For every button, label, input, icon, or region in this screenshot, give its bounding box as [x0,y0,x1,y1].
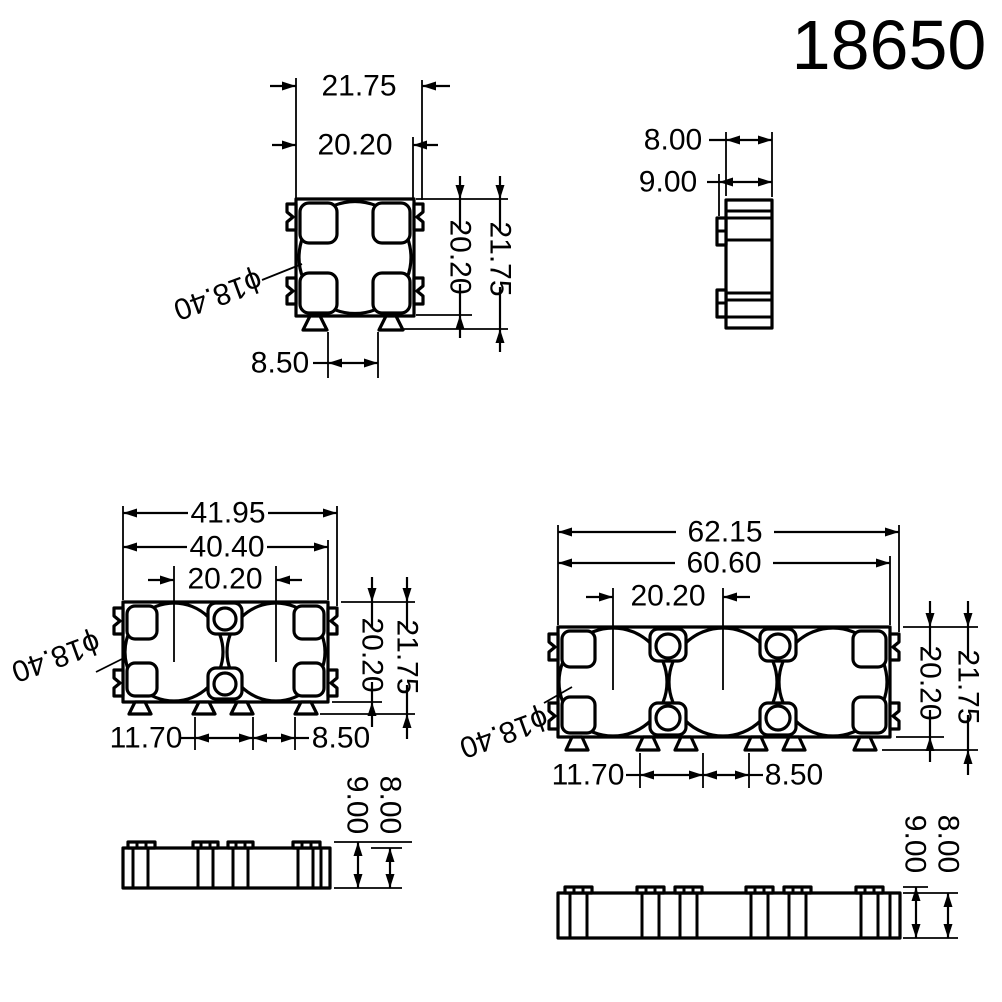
interlock-slot [287,204,296,230]
corner-post [294,606,324,639]
dim-overall-depth: 9.00 [639,166,697,199]
corner-post [562,631,595,667]
dim-overall-height: 21.75 [391,619,424,694]
dim-body-height: 20.20 [914,645,947,720]
junction-hole [766,634,790,658]
foot [745,737,767,750]
foot [379,316,403,330]
dim-bore-diameter: ϕ18.40 [455,702,553,764]
battery-holder-drawing: 18650 21.75 20.20 [0,0,1002,1002]
dim-overall-depth: 9.00 [341,776,374,834]
dim-cell-pitch: 20.20 [630,580,705,613]
corner-post [562,697,595,733]
interlock-tab [328,608,337,634]
top-tab [293,842,320,848]
interlock-tab [414,204,423,230]
top-tab [856,887,883,893]
foot [129,702,151,714]
dim-body-width: 20.20 [317,129,392,162]
double-side-outline [123,842,330,888]
corner-post [127,606,157,639]
triple-cell-outline [549,627,899,750]
top-tab [746,887,773,893]
corner-post [373,273,410,313]
top-tab [193,842,218,848]
dim-body-height: 20.20 [356,617,389,692]
dim-overall-height: 21.75 [484,221,517,296]
corner-post [300,203,337,243]
dim-bore-diameter: ϕ18.40 [169,264,267,326]
junction-hole [656,634,680,658]
top-tab [228,842,253,848]
triple-cell-top-view: 62.15 60.60 20.20 20.20 21.75 [455,516,984,792]
double-cell-top-view: 41.95 40.40 20.20 20.20 21.75 [7,497,423,755]
single-cell-outline [287,199,423,330]
dim-body-height: 20.20 [444,219,477,294]
corner-post [294,663,324,696]
junction-hole [656,706,680,730]
corner-post [127,663,157,696]
interlock-slot [114,670,123,696]
dim-foot-gap: 8.50 [312,722,370,755]
dim-body-depth: 8.00 [374,776,407,834]
dim-foot-gap: 8.50 [251,347,309,380]
dim-foot-pitch: 11.70 [552,759,625,792]
foot [303,316,327,330]
interlock-tab [328,670,337,696]
junction-hole [766,706,790,730]
double-cell-side-view: 9.00 8.00 [123,776,412,888]
top-tab [128,842,155,848]
interlock-slot [549,634,558,660]
single-cell-side-view: 8.00 9.00 [639,124,772,329]
page-title: 18650 [792,6,987,84]
dim-overall-width: 62.15 [687,516,762,549]
double-cell-outline [114,602,337,714]
holder-side-body [558,893,900,938]
foot [193,702,215,714]
corner-post [300,273,337,313]
triple-cell-side-view: 9.00 8.00 [558,815,965,938]
dim-body-width: 60.60 [686,547,761,580]
junction-hole [214,673,236,695]
foot [295,702,317,714]
top-tab [565,887,592,893]
dim-body-depth: 8.00 [932,815,965,873]
foot [675,737,697,750]
foot [637,737,659,750]
dim-cell-pitch: 20.20 [187,563,262,596]
double-side-dimensions: 9.00 8.00 [334,776,412,888]
interlock-slot [114,608,123,634]
technical-drawing-sheet: 18650 21.75 20.20 [0,0,1002,1002]
dim-overall-width: 41.95 [190,497,265,530]
interlock-slot [287,278,296,304]
foot [783,737,805,750]
foot [854,737,876,750]
top-tab [675,887,702,893]
triple-side-outline [558,887,900,938]
dim-body-depth: 8.00 [644,124,702,157]
corner-post [853,697,886,733]
foot [231,702,253,714]
interlock-tab [890,703,899,729]
corner-post [373,203,410,243]
dim-body-width: 40.40 [189,531,264,564]
interlock-tab [890,634,899,660]
dim-foot-pitch: 11.70 [110,722,183,755]
dim-bore-diameter: ϕ18.40 [7,626,105,688]
dim-foot-gap: 8.50 [765,759,823,792]
single-side-outline [717,200,772,328]
dim-overall-width: 21.75 [321,70,396,103]
triple-side-dimensions: 9.00 8.00 [899,815,965,938]
foot [566,737,588,750]
junction-hole [214,608,236,630]
top-tab [784,887,811,893]
single-cell-top-view: 21.75 20.20 20.20 21.75 8.50 ϕ18.40 [169,70,516,380]
top-tab [637,887,664,893]
dim-overall-depth: 9.00 [899,815,932,873]
dim-overall-height: 21.75 [952,649,985,724]
interlock-tab [414,278,423,304]
corner-post [853,631,886,667]
